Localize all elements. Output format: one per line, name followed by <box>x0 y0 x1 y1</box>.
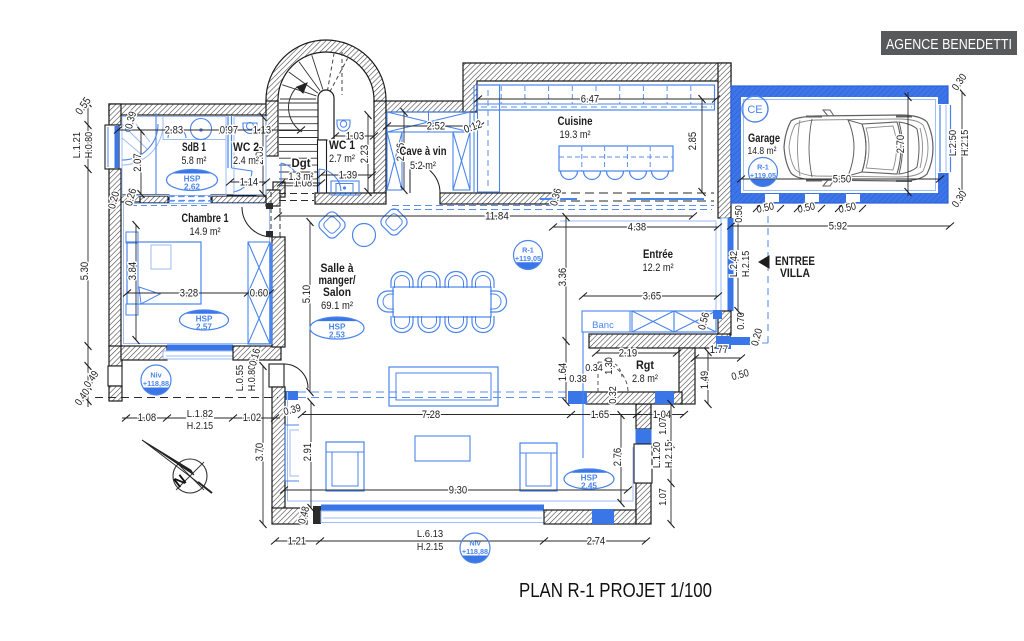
svg-text:4.38: 4.38 <box>628 222 646 234</box>
svg-text:0.38: 0.38 <box>569 373 587 385</box>
svg-text:Salon: Salon <box>323 287 351 299</box>
svg-text:1.02: 1.02 <box>243 412 261 424</box>
svg-text:L.2.42: L.2.42 <box>728 251 740 277</box>
svg-text:+119,05: +119,05 <box>515 254 541 263</box>
svg-text:H.2.15: H.2.15 <box>187 420 213 432</box>
svg-text:WC 1: WC 1 <box>329 140 356 152</box>
svg-text:3.84: 3.84 <box>127 262 139 280</box>
svg-text:Banc: Banc <box>592 320 614 331</box>
svg-text:2,45: 2,45 <box>581 482 597 491</box>
svg-text:1.3 m²: 1.3 m² <box>289 171 314 183</box>
svg-text:0.60: 0.60 <box>250 288 268 300</box>
svg-text:1.39: 1.39 <box>339 170 357 182</box>
svg-text:14.9 m²: 14.9 m² <box>190 226 221 238</box>
svg-text:5.8 m²: 5.8 m² <box>182 155 207 167</box>
svg-text:CE: CE <box>747 104 762 116</box>
svg-text:7.28: 7.28 <box>422 409 440 421</box>
svg-text:2.23: 2.23 <box>359 145 371 163</box>
svg-text:1.77: 1.77 <box>710 344 728 356</box>
svg-text:1.13: 1.13 <box>253 125 271 137</box>
svg-text:69.1 m²: 69.1 m² <box>321 300 353 312</box>
svg-text:2.70: 2.70 <box>895 135 907 153</box>
svg-text:2.4 m²: 2.4 m² <box>233 155 259 167</box>
svg-text:2.85: 2.85 <box>687 132 699 150</box>
svg-text:2,62: 2,62 <box>184 183 200 192</box>
svg-text:5.30: 5.30 <box>79 262 91 280</box>
svg-text:3.65: 3.65 <box>643 291 661 303</box>
svg-text:5.10: 5.10 <box>301 285 313 303</box>
svg-text:PLAN R-1 PROJET 1/100: PLAN R-1 PROJET 1/100 <box>519 579 712 602</box>
svg-text:H.0.80: H.0.80 <box>246 365 258 391</box>
svg-text:3.36: 3.36 <box>557 268 569 286</box>
svg-text:Dgt: Dgt <box>292 158 311 170</box>
svg-text:2.19: 2.19 <box>619 348 637 360</box>
svg-text:19.3 m²: 19.3 m² <box>560 129 591 141</box>
svg-text:H.2.15: H.2.15 <box>740 251 752 277</box>
svg-text:AGENCE BENEDETTI: AGENCE BENEDETTI <box>886 36 1012 53</box>
svg-text:+118,88: +118,88 <box>143 379 169 388</box>
svg-text:+118,88: +118,88 <box>462 547 488 556</box>
svg-text:5.2 m²: 5.2 m² <box>410 160 436 172</box>
svg-text:5.92: 5.92 <box>829 221 847 233</box>
svg-text:2.8 m²: 2.8 m² <box>632 373 658 385</box>
svg-text:1.64: 1.64 <box>557 363 569 381</box>
svg-text:0.34: 0.34 <box>585 362 603 374</box>
svg-text:Chambre 1: Chambre 1 <box>182 213 229 225</box>
svg-text:2.76: 2.76 <box>612 448 624 466</box>
svg-text:H.0.80: H.0.80 <box>83 132 95 158</box>
svg-text:SdB 1: SdB 1 <box>182 142 206 154</box>
svg-text:ENTREE: ENTREE <box>775 256 815 268</box>
svg-text:Entrée: Entrée <box>643 249 673 261</box>
svg-text:2.07: 2.07 <box>132 153 144 171</box>
svg-text:2.74: 2.74 <box>587 536 605 548</box>
svg-text:14.8 m²: 14.8 m² <box>748 145 777 157</box>
svg-text:3.70: 3.70 <box>254 443 266 461</box>
svg-text:+119,05: +119,05 <box>750 171 776 180</box>
svg-text:1.21: 1.21 <box>288 536 306 548</box>
svg-text:1.07: 1.07 <box>657 488 669 506</box>
svg-text:manger/: manger/ <box>319 275 357 287</box>
svg-text:L.1.21: L.1.21 <box>71 132 83 158</box>
svg-text:2.52: 2.52 <box>427 121 445 133</box>
svg-text:11.84: 11.84 <box>485 211 509 223</box>
svg-text:Cuisine: Cuisine <box>558 116 593 128</box>
svg-text:12.2 m²: 12.2 m² <box>643 262 674 274</box>
svg-text:2.91: 2.91 <box>302 443 314 461</box>
svg-text:3.28: 3.28 <box>180 288 198 300</box>
svg-text:2.83: 2.83 <box>165 125 183 137</box>
svg-text:H.2.15: H.2.15 <box>663 442 675 468</box>
svg-text:Rgt: Rgt <box>636 360 654 372</box>
svg-text:1.07: 1.07 <box>657 417 669 435</box>
svg-text:2.7 m²: 2.7 m² <box>329 153 355 165</box>
svg-text:2,53: 2,53 <box>329 331 345 340</box>
svg-text:9.30: 9.30 <box>449 485 467 497</box>
svg-text:Salle à: Salle à <box>321 263 355 275</box>
svg-text:Garage: Garage <box>748 133 780 145</box>
svg-text:1.49: 1.49 <box>699 371 711 389</box>
svg-text:0.32: 0.32 <box>607 386 619 404</box>
svg-text:1.08: 1.08 <box>138 412 156 424</box>
svg-text:0.50: 0.50 <box>733 205 745 223</box>
svg-text:H.2.15: H.2.15 <box>959 130 971 156</box>
svg-text:2,57: 2,57 <box>196 323 212 332</box>
svg-text:L.6.13: L.6.13 <box>417 528 443 540</box>
svg-text:0.97: 0.97 <box>220 125 238 137</box>
svg-text:WC 2: WC 2 <box>233 142 259 154</box>
svg-text:L.0.55: L.0.55 <box>234 365 246 391</box>
svg-text:6.47: 6.47 <box>581 94 599 106</box>
svg-text:1.65: 1.65 <box>591 409 609 421</box>
svg-text:L.2.50: L.2.50 <box>947 130 959 156</box>
svg-text:L.1.82: L.1.82 <box>187 408 213 420</box>
svg-text:H.2.15: H.2.15 <box>417 541 443 553</box>
svg-text:L.1.20: L.1.20 <box>651 442 663 468</box>
svg-text:1.14: 1.14 <box>240 177 258 189</box>
svg-text:Cave à vin: Cave à vin <box>400 146 447 158</box>
svg-text:5.50: 5.50 <box>833 174 851 186</box>
svg-text:VILLA: VILLA <box>780 268 810 280</box>
